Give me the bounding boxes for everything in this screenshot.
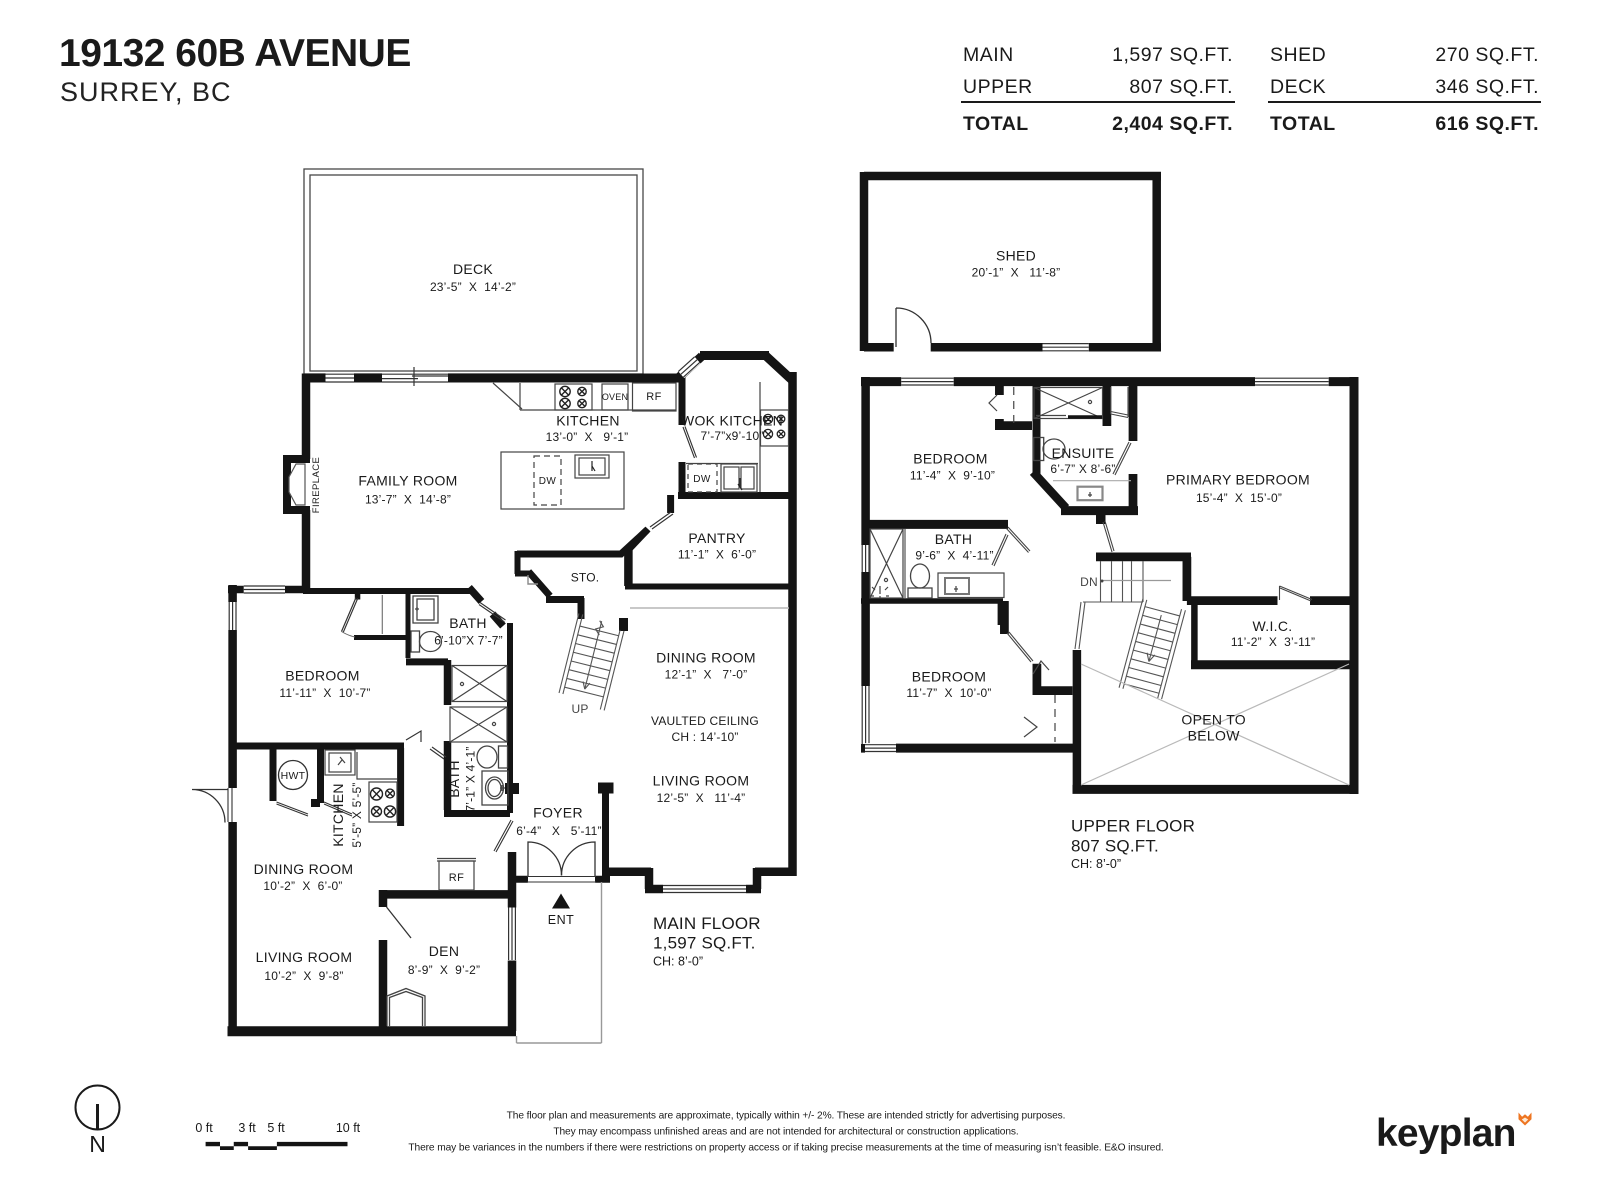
svg-text:ENT: ENT <box>548 913 575 927</box>
svg-text:20’-1” X 11’-8”: 20’-1” X 11’-8” <box>972 266 1061 280</box>
svg-text:13’-7” X 14’-8”: 13’-7” X 14’-8” <box>365 493 451 507</box>
svg-text:7’-1” X 4’-1”: 7’-1” X 4’-1” <box>464 746 478 811</box>
svg-text:There may be variances in the: There may be variances in the numbers if… <box>408 1143 1163 1154</box>
svg-text:MAIN: MAIN <box>963 44 1014 66</box>
svg-text:13’-0” X 9’-1”: 13’-0” X 9’-1” <box>546 430 629 444</box>
svg-text:11’-2” X 3’-11”: 11’-2” X 3’-11” <box>1231 635 1315 649</box>
svg-text:FIREPLACE: FIREPLACE <box>311 457 322 513</box>
svg-text:1,597 SQ.FT.: 1,597 SQ.FT. <box>653 934 756 953</box>
svg-text:OPEN TO: OPEN TO <box>1181 711 1246 727</box>
svg-text:keyplan: keyplan <box>1376 1112 1516 1155</box>
svg-text:BELOW: BELOW <box>1188 728 1241 744</box>
svg-text:HWT: HWT <box>281 770 306 782</box>
svg-text:KITCHEN: KITCHEN <box>330 783 346 847</box>
svg-text:SHED: SHED <box>996 248 1036 264</box>
svg-text:PRIMARY BEDROOM: PRIMARY BEDROOM <box>1166 472 1310 488</box>
svg-text:6’-7” X 8’-6”: 6’-7” X 8’-6” <box>1050 462 1115 476</box>
svg-text:6’-10”X 7’-7”: 6’-10”X 7’-7” <box>434 634 503 648</box>
svg-text:DEN: DEN <box>429 943 459 959</box>
svg-text:RF: RF <box>646 391 661 403</box>
svg-text:FOYER: FOYER <box>533 805 583 821</box>
svg-text:UPPER FLOOR: UPPER FLOOR <box>1071 817 1195 836</box>
svg-text:11’-7” X 10’-0”: 11’-7” X 10’-0” <box>906 686 991 700</box>
svg-text:CH: 8’-0”: CH: 8’-0” <box>653 955 703 969</box>
svg-text:They may encompass unfinished: They may encompass unfinished areas and … <box>553 1127 1018 1138</box>
svg-text:LIVING ROOM: LIVING ROOM <box>256 949 353 965</box>
svg-text:W.I.C.: W.I.C. <box>1253 618 1293 634</box>
svg-text:TOTAL: TOTAL <box>1270 113 1336 135</box>
svg-text:KITCHEN: KITCHEN <box>556 413 620 429</box>
svg-text:9’-6” X 4’-11”: 9’-6” X 4’-11” <box>915 549 993 563</box>
svg-text:5 ft: 5 ft <box>267 1121 285 1135</box>
svg-text:BATH: BATH <box>935 531 973 547</box>
svg-text:VAULTED CEILING: VAULTED CEILING <box>651 714 759 728</box>
svg-text:7’-7”x9’-10”: 7’-7”x9’-10” <box>700 429 763 443</box>
svg-text:WOK KITCHEN: WOK KITCHEN <box>681 413 783 429</box>
svg-text:346 SQ.FT.: 346 SQ.FT. <box>1435 76 1539 98</box>
svg-text:10 ft: 10 ft <box>336 1121 361 1135</box>
svg-text:PANTRY: PANTRY <box>688 530 746 546</box>
svg-text:ENSUITE: ENSUITE <box>1052 445 1115 461</box>
svg-text:270 SQ.FT.: 270 SQ.FT. <box>1435 44 1539 66</box>
svg-text:23’-5” X 14’-2”: 23’-5” X 14’-2” <box>430 280 516 294</box>
svg-text:FAMILY ROOM: FAMILY ROOM <box>358 473 457 489</box>
svg-text:DINING ROOM: DINING ROOM <box>656 650 756 666</box>
svg-text:UP: UP <box>571 702 588 716</box>
svg-text:BEDROOM: BEDROOM <box>912 669 986 685</box>
svg-text:DINING ROOM: DINING ROOM <box>254 861 354 877</box>
svg-text:12’-1” X 7’-0”: 12’-1” X 7’-0” <box>665 668 748 682</box>
svg-text:11’-1” X 6’-0”: 11’-1” X 6’-0” <box>678 548 756 562</box>
svg-text:BEDROOM: BEDROOM <box>285 668 359 684</box>
svg-text:OVEN: OVEN <box>602 392 628 402</box>
svg-text:BATH: BATH <box>446 760 462 798</box>
svg-text:DECK: DECK <box>453 261 493 277</box>
svg-text:6’-4” X 5’-11”: 6’-4” X 5’-11” <box>516 824 601 838</box>
svg-text:DW: DW <box>693 474 711 485</box>
svg-text:BATH: BATH <box>449 615 487 631</box>
svg-text:11’-11” X 10’-7”: 11’-11” X 10’-7” <box>279 686 370 700</box>
svg-text:10’-2” X 9’-8”: 10’-2” X 9’-8” <box>264 969 343 983</box>
svg-text:0 ft: 0 ft <box>195 1121 213 1135</box>
svg-text:3 ft: 3 ft <box>238 1121 256 1135</box>
svg-text:DECK: DECK <box>1270 76 1326 98</box>
svg-text:616 SQ.FT.: 616 SQ.FT. <box>1435 113 1539 135</box>
svg-text:BEDROOM: BEDROOM <box>913 451 987 467</box>
svg-text:807 SQ.FT.: 807 SQ.FT. <box>1071 837 1159 856</box>
svg-text:12’-5” X 11’-4”: 12’-5” X 11’-4” <box>657 791 746 805</box>
svg-text:10’-2” X 6’-0”: 10’-2” X 6’-0” <box>263 879 342 893</box>
svg-text:11’-4” X 9’-10”: 11’-4” X 9’-10” <box>910 469 995 483</box>
svg-text:RF: RF <box>449 872 464 884</box>
svg-text:807 SQ.FT.: 807 SQ.FT. <box>1129 76 1233 98</box>
svg-text:8’-9” X 9’-2”: 8’-9” X 9’-2” <box>408 963 480 977</box>
svg-text:N: N <box>89 1131 106 1157</box>
svg-text:MAIN FLOOR: MAIN FLOOR <box>653 914 761 933</box>
svg-text:2,404 SQ.FT.: 2,404 SQ.FT. <box>1112 113 1233 135</box>
svg-text:TOTAL: TOTAL <box>963 113 1029 135</box>
svg-text:STO.: STO. <box>571 571 600 585</box>
svg-text:CH : 14’-10”: CH : 14’-10” <box>671 730 738 744</box>
svg-text:5’-5” X 5’-5”: 5’-5” X 5’-5” <box>350 782 364 847</box>
svg-text:LIVING ROOM: LIVING ROOM <box>653 773 750 789</box>
svg-text:CH: 8’-0”: CH: 8’-0” <box>1071 857 1121 871</box>
svg-text:19132 60B AVENUE: 19132 60B AVENUE <box>59 32 411 75</box>
svg-text:SURREY, BC: SURREY, BC <box>60 77 232 107</box>
svg-text:15’-4” X 15’-0”: 15’-4” X 15’-0” <box>1196 491 1282 505</box>
svg-text:DN: DN <box>1080 575 1098 589</box>
svg-text:UPPER: UPPER <box>963 76 1033 98</box>
svg-text:SHED: SHED <box>1270 44 1326 66</box>
svg-text:The floor plan and measurement: The floor plan and measurements are appr… <box>507 1111 1066 1122</box>
svg-text:DW: DW <box>539 476 557 487</box>
svg-text:1,597 SQ.FT.: 1,597 SQ.FT. <box>1112 44 1233 66</box>
